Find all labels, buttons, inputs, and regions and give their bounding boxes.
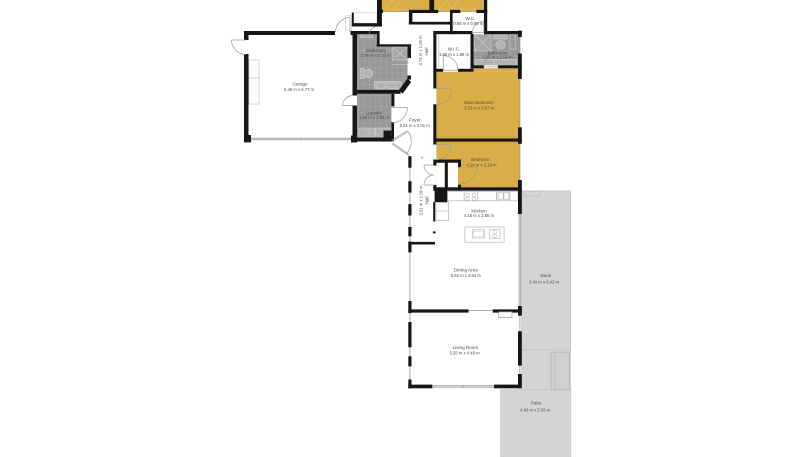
svg-text:Living Room: Living Room xyxy=(453,345,479,350)
svg-text:Foyer: Foyer xyxy=(409,117,421,122)
svg-text:5.93 m x 3.64 m: 5.93 m x 3.64 m xyxy=(451,273,482,278)
svg-text:W.C.: W.C. xyxy=(466,16,476,21)
svg-text:0.95 m x 0.95 m: 0.95 m x 0.95 m xyxy=(453,21,484,26)
svg-text:Garage: Garage xyxy=(292,82,308,87)
svg-text:5.93 m x 4.49 m: 5.93 m x 4.49 m xyxy=(450,351,481,356)
svg-text:Hall: Hall xyxy=(425,197,430,205)
svg-text:Main Bedroom: Main Bedroom xyxy=(464,100,494,105)
svg-text:Bedroom: Bedroom xyxy=(471,157,490,162)
svg-text:4.14 m x 2.19 m: 4.14 m x 2.19 m xyxy=(466,163,497,168)
svg-text:3.74 m x 1.06 m: 3.74 m x 1.06 m xyxy=(418,35,423,66)
svg-text:1.85 m x 1.69 m: 1.85 m x 1.69 m xyxy=(439,52,470,57)
svg-text:Hall: Hall xyxy=(424,48,429,56)
svg-text:3.01 m x 1.06 m: 3.01 m x 1.06 m xyxy=(418,185,423,216)
svg-text:3.53 m x 3.97 m: 3.53 m x 3.97 m xyxy=(464,106,495,111)
svg-text:Deck: Deck xyxy=(540,273,551,278)
svg-text:5.46 m x 5.77 m: 5.46 m x 5.77 m xyxy=(284,87,315,92)
svg-text:Patio: Patio xyxy=(531,400,542,405)
svg-text:1.68 m x 2.55 m: 1.68 m x 2.55 m xyxy=(359,115,390,120)
svg-text:1.85 m x 1.94 m: 1.85 m x 1.94 m xyxy=(482,54,513,59)
svg-text:3.43 m x 8.43 m: 3.43 m x 8.43 m xyxy=(529,279,560,284)
svg-text:4.15 m x 2.85 m: 4.15 m x 2.85 m xyxy=(464,213,495,218)
svg-text:2.06 m x 2.23 m: 2.06 m x 2.23 m xyxy=(361,53,392,58)
svg-text:2.21 m x 2.01 m: 2.21 m x 2.01 m xyxy=(400,123,431,128)
svg-text:W.I.C.: W.I.C. xyxy=(448,46,461,51)
svg-text:Dining Area: Dining Area xyxy=(454,268,478,273)
svg-text:4.96 m x 5.56 m: 4.96 m x 5.56 m xyxy=(520,407,551,412)
